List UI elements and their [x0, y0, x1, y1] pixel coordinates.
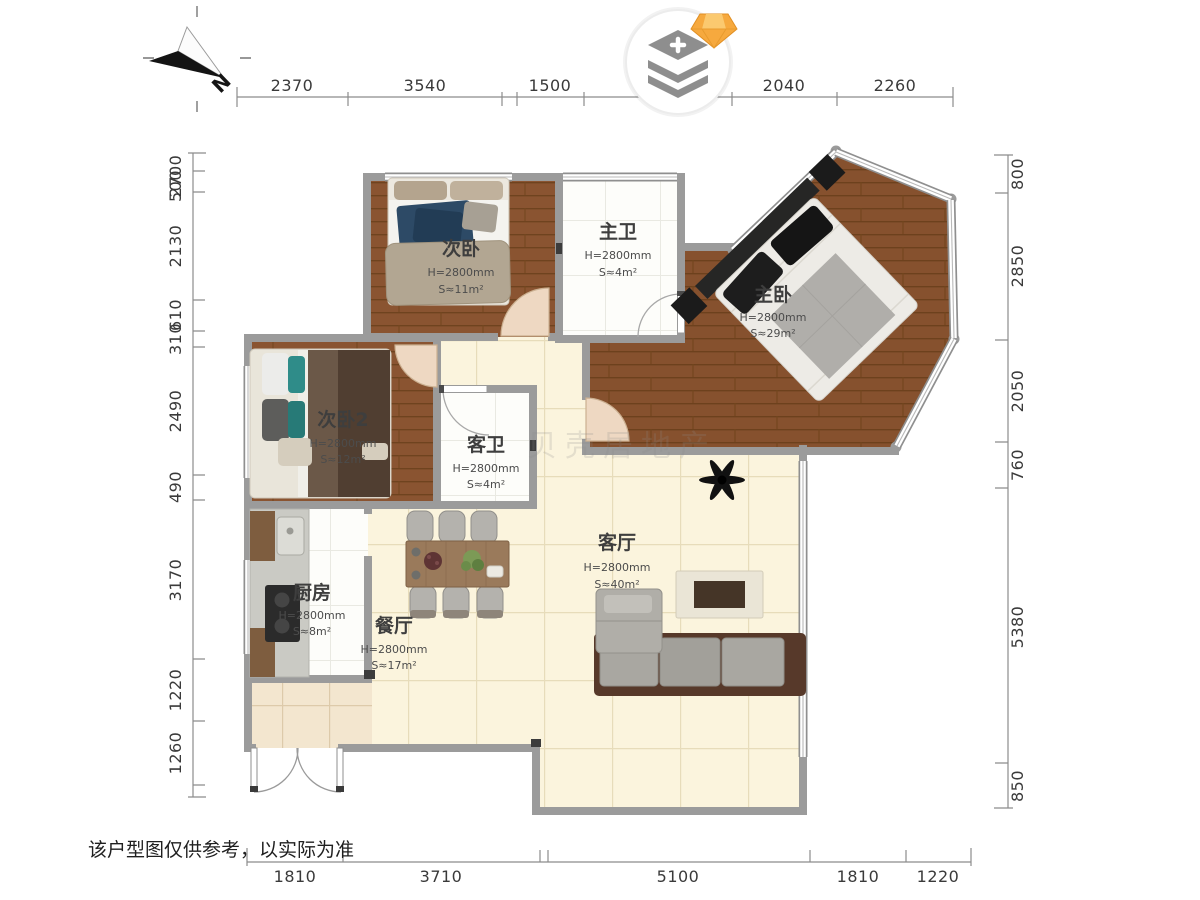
dim-label: 1260 [166, 732, 185, 775]
room-height: H=2800mm [584, 561, 651, 574]
dimension-chain-right: 800 2850 2050 760 5380 850 [994, 155, 1027, 808]
room-height: H=2800mm [585, 249, 652, 262]
room-name: 次卧2 [317, 408, 368, 431]
dim-label: 2850 [1008, 245, 1027, 288]
room-height: H=2800mm [428, 266, 495, 279]
dim-label: 2260 [874, 76, 917, 95]
floor-plan-page: 次卧 H=2800mm S≈11m² 主卫 H=2800mm S≈4m² 主卧 … [0, 0, 1200, 900]
window-bay-east [951, 200, 954, 338]
room-name: 客卫 [467, 433, 505, 456]
dim-label: 2490 [166, 390, 185, 433]
room-area: S≈17m² [371, 659, 416, 672]
entry-double-door [250, 748, 344, 792]
room-name: 客厅 [598, 531, 636, 554]
room-area: S≈4m² [599, 266, 637, 279]
room-name: 厨房 [293, 581, 331, 604]
room-height: H=2800mm [740, 311, 807, 324]
room-area: S≈40m² [594, 578, 639, 591]
room-area: S≈11m² [438, 283, 483, 296]
dim-label: 490 [166, 471, 185, 503]
dim-label: 310 [166, 323, 185, 355]
dim-label: 1220 [917, 867, 960, 886]
dimension-chain-left: 2700 500 2130 610 310 2490 490 3170 1220… [166, 153, 206, 797]
dim-label: 800 [1008, 158, 1027, 190]
foyer-floor [248, 679, 372, 748]
layers-badge-button[interactable] [623, 7, 737, 117]
dim-label: 5380 [1008, 606, 1027, 649]
dim-label: 760 [1008, 449, 1027, 481]
room-height: H=2800mm [453, 462, 520, 475]
dim-label: 500 [166, 170, 185, 202]
dim-label: 3710 [420, 867, 463, 886]
room-name: 次卧 [442, 237, 480, 260]
dim-label: 3170 [166, 559, 185, 602]
room-height: H=2800mm [361, 643, 428, 656]
dim-label: 1810 [274, 867, 317, 886]
dim-label: 2040 [763, 76, 806, 95]
dining-set-icon [406, 511, 509, 618]
north-arrow-icon: N [143, 6, 251, 112]
dim-label: 850 [1008, 770, 1027, 802]
dim-label: 5100 [657, 867, 700, 886]
room-name: 主卧 [754, 284, 792, 306]
dim-label: 2130 [166, 225, 185, 268]
dim-label: 3540 [404, 76, 447, 95]
room-area: S≈8m² [293, 625, 331, 638]
room-height: H=2800mm [279, 609, 346, 622]
dim-label: 2050 [1008, 370, 1027, 413]
dim-label: 1810 [837, 867, 880, 886]
dimension-chain-bottom: 1810 3710 5100 1810 1220 [247, 848, 971, 886]
tv-console-icon [676, 571, 763, 618]
disclaimer-text: 该户型图仅供参考，以实际为准 [88, 839, 354, 861]
watermark: 贝壳居地产 [527, 429, 717, 464]
room-area: S≈4m² [467, 478, 505, 491]
room-name: 主卫 [599, 221, 637, 243]
room-height: H=2800mm [310, 437, 377, 450]
dimension-chain-top: 2370 3540 1500 2040 2260 [237, 76, 953, 107]
living-floor [536, 447, 803, 811]
room-area: S≈29m² [750, 327, 795, 340]
room-area: S≈12m² [320, 453, 365, 466]
room-name: 餐厅 [375, 614, 413, 637]
dim-label: 2370 [271, 76, 314, 95]
floor-plan-canvas: 次卧 H=2800mm S≈11m² 主卫 H=2800mm S≈4m² 主卧 … [0, 0, 1200, 900]
dim-label: 1220 [166, 669, 185, 712]
dim-label: 1500 [529, 76, 572, 95]
